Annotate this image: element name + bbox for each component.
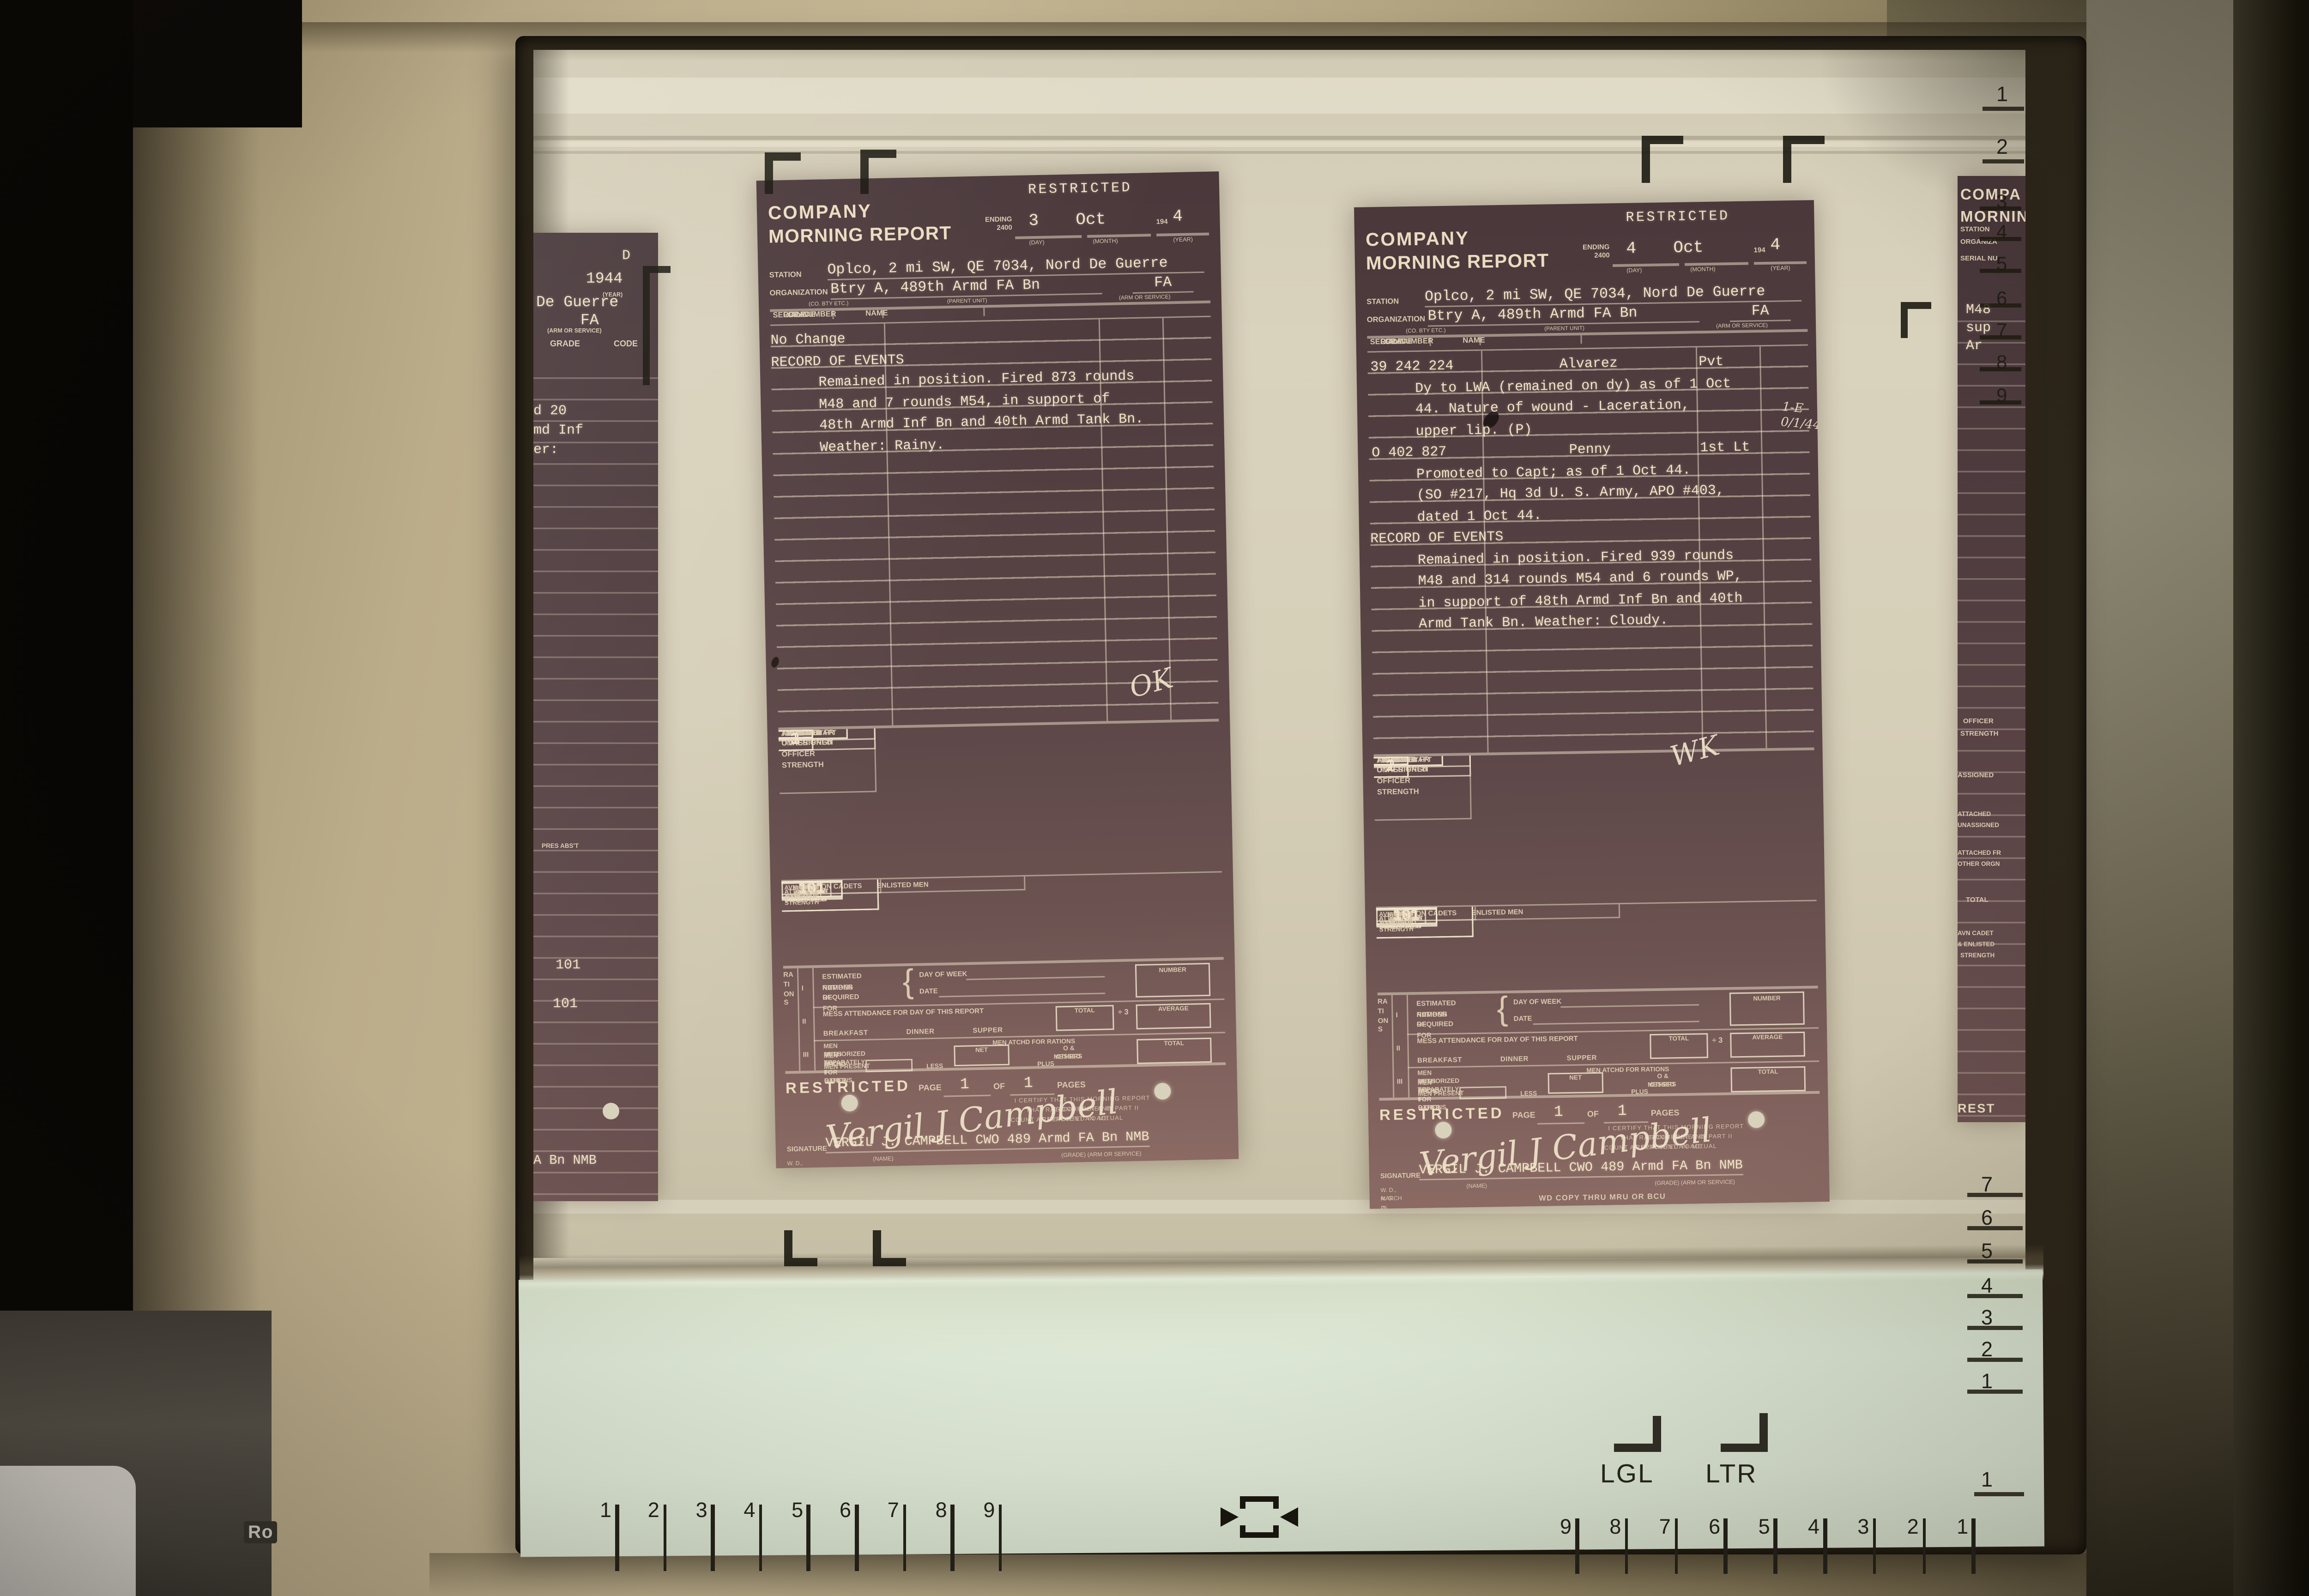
centering-arrow-right — [1280, 1507, 1298, 1527]
format-bracket-icon — [1783, 136, 1825, 183]
fragment: SERIAL NU — [1960, 255, 1998, 263]
page-number: 1 — [1554, 1105, 1563, 1121]
underline — [1087, 234, 1151, 237]
ruler-tick — [998, 1505, 1002, 1571]
record-text: No Change — [770, 332, 846, 349]
ruler-tick — [1575, 1518, 1579, 1574]
fragment: 101 — [553, 997, 578, 1013]
fragment: Ar — [1966, 339, 1983, 355]
ruler-tick — [807, 1505, 810, 1571]
parent-unit-sublabel: (PARENT UNIT) — [1544, 324, 1584, 332]
record-text: dated 1 Oct 44. — [1370, 508, 1542, 526]
ruler-tick — [1972, 1518, 1976, 1574]
ruler-number: 4 — [743, 1499, 755, 1523]
doc-footer: RESTRICTED PAGE 1 OF 1 PAGES I CERTIFY T… — [785, 1062, 1228, 1168]
format-bracket-icon — [873, 1230, 906, 1266]
centering-mark-top — [1240, 1496, 1279, 1509]
ending-month: Oct — [1076, 210, 1106, 230]
classification-restricted: RESTRICTED — [1626, 210, 1730, 227]
fragment: MORNIN — [1960, 209, 2025, 226]
fragment: UNASSIGNED — [1958, 822, 1999, 828]
format-bracket-icon — [643, 266, 671, 385]
doc-title-morning-report: MORNING REPORT — [768, 223, 952, 247]
fragment: sup — [1966, 321, 1991, 337]
number-box: NUMBER — [1729, 991, 1805, 1026]
fragment: OTHER ORGN — [1958, 860, 2000, 867]
net-box: NET — [1548, 1072, 1604, 1094]
enlisted-strength-table: AVN CADET & ENLISTED STRENGTHAVIATION CA… — [781, 871, 1224, 966]
format-bracket-icon — [765, 152, 801, 194]
morning-report-oct-3: COMPANY MORNING REPORT RESTRICTED ENDING… — [756, 171, 1239, 1168]
ruler-tick — [1625, 1518, 1628, 1574]
year-digit: 4 — [1173, 207, 1183, 226]
year-prefix: 194 — [1753, 247, 1765, 255]
station-label: STATION — [769, 271, 802, 280]
page-label: PAGE — [1512, 1112, 1535, 1121]
underline — [1537, 1122, 1584, 1124]
ending-day: 4 — [1626, 239, 1636, 258]
ruler-number: 1 — [600, 1499, 611, 1523]
fragment: TOTAL — [1966, 896, 1989, 905]
month-sublabel: (MONTH) — [1690, 266, 1716, 273]
ruler-tick — [1967, 1193, 2023, 1197]
letter-format-label: LTR — [1705, 1460, 1757, 1491]
fragment: ATTACHED FR — [1958, 849, 2001, 856]
format-bracket-icon — [1642, 136, 1683, 183]
hole-punch — [1748, 1111, 1765, 1128]
morning-report-document: COMPANY MORNING REPORT RESTRICTED ENDING… — [756, 171, 1239, 1168]
total-box-2: TOTAL — [1136, 1038, 1212, 1064]
record-text: RECORD OF EVENTS — [1370, 531, 1504, 548]
fragment: ASSIGNED — [1958, 772, 1994, 780]
ruler-tick — [615, 1505, 619, 1571]
organization-label: ORGANIZATION — [1367, 316, 1425, 325]
underline — [1015, 235, 1082, 238]
partial-document-left: D 1944 (YEAR) De Guerre FA (ARM OR SERVI… — [533, 233, 658, 1201]
ruler-tick — [1974, 1492, 2024, 1496]
rations-section: RATIONS I II III ESTIMATED NUMBER OFRATI… — [1378, 985, 1819, 1098]
underline — [1685, 262, 1748, 266]
fragment: CODE — [614, 341, 638, 349]
fragment: D — [622, 249, 630, 265]
morning-report-document: COMPANY MORNING REPORT RESTRICTED ENDING… — [1354, 200, 1830, 1209]
ruler-tick — [1873, 1518, 1876, 1574]
ending-day: 3 — [1028, 211, 1039, 230]
format-bracket-icon — [784, 1230, 817, 1266]
average-box: AVERAGE — [1136, 1003, 1211, 1029]
bezel-right-column — [2086, 0, 2233, 1596]
background-shadow — [133, 0, 302, 127]
rations-vertical-label: RATIONS — [1378, 998, 1389, 1035]
year-prefix: 194 — [1156, 218, 1167, 226]
morning-report-oct-4: COMPANY MORNING REPORT RESTRICTED ENDING… — [1354, 200, 1830, 1209]
ruler-tick — [1980, 269, 2021, 272]
format-bracket-icon — [1721, 1413, 1768, 1452]
ruler-tick — [951, 1505, 955, 1571]
ruler-number: 1 — [1981, 1469, 1993, 1492]
divide-by-three: ÷ 3 — [1712, 1037, 1723, 1046]
officer-strength-table: OFFICER STRENGTHFLD O & CAPT1ST LT2D LTW… — [1374, 747, 1817, 907]
page-total: 1 — [1024, 1076, 1034, 1093]
meals-labels: BREAKFAST DINNER SUPPER — [1417, 1054, 1597, 1065]
ruler-number: 8 — [1609, 1516, 1621, 1539]
doc-header: COMPANY MORNING REPORT RESTRICTED ENDING… — [768, 172, 1209, 264]
classification-restricted: RESTRICTED — [1028, 181, 1132, 199]
ruler-number: 6 — [840, 1499, 851, 1523]
enlisted-data-row: TOTAL101101 — [781, 881, 782, 902]
ruler-number: 9 — [983, 1499, 995, 1523]
co-sublabel: (CO. BTY ETC.) — [1406, 326, 1446, 334]
year-sublabel: (YEAR) — [1173, 236, 1193, 243]
record-text: upper lip. (P) — [1368, 423, 1532, 441]
fragment: COMPA — [1960, 187, 2021, 204]
rations-part-i: I — [802, 985, 804, 993]
net-box: NET — [954, 1045, 1009, 1066]
grade-arm-sublabel: (GRADE) (ARM OR SERVICE) — [1655, 1178, 1735, 1186]
rations-part-i: I — [1396, 1012, 1397, 1020]
ruler-tick — [711, 1505, 715, 1571]
day-sublabel: (DAY) — [1029, 239, 1045, 246]
station-label: STATION — [1366, 298, 1399, 307]
page-total: 1 — [1618, 1104, 1627, 1120]
ending-month: Oct — [1673, 238, 1703, 258]
fragment: er: — [533, 443, 558, 459]
strength-value: 1 — [779, 730, 813, 751]
centering-mark-bottom — [1240, 1525, 1279, 1538]
screen-frame: D 1944 (YEAR) De Guerre FA (ARM OR SERVI… — [515, 36, 2086, 1554]
reader-model-label: Ro — [244, 1521, 278, 1544]
background-surface — [0, 1466, 136, 1596]
fragment: AVN CADET — [1958, 930, 1994, 937]
arm-sublabel: (ARM OR SERVICE) — [1119, 293, 1171, 301]
doc-title-company: COMPANY — [768, 200, 872, 224]
ruler-number: 2 — [1996, 136, 2008, 159]
ruler-tick — [1983, 159, 2024, 163]
ruler-tick — [1967, 1226, 2023, 1230]
fragment: md Inf — [533, 424, 583, 439]
name-sublabel: (NAME) — [873, 1155, 894, 1162]
ruler-tick — [1980, 206, 2021, 210]
underline — [943, 1094, 991, 1097]
fragment: GRADE — [550, 341, 580, 349]
ruler-number: 3 — [1857, 1516, 1869, 1539]
microfilm-reader-photo: D 1944 (YEAR) De Guerre FA (ARM OR SERVI… — [0, 0, 2309, 1596]
others-messed-label: O & OTHERSMESSED — [1023, 1044, 1084, 1054]
ruler-tick — [663, 1505, 667, 1571]
serial-number: O 402 827 — [1372, 446, 1447, 462]
grade-arm-sublabel: (GRADE) (ARM OR SERVICE) — [1061, 1150, 1142, 1158]
fragment: & ENLISTED — [1958, 941, 1995, 948]
ruler-number: 7 — [1659, 1516, 1671, 1539]
soldier-name: Alvarez — [1481, 356, 1696, 374]
ruler-tick — [903, 1505, 907, 1571]
ruler-tick — [1724, 1518, 1728, 1574]
reader-screen: D 1944 (YEAR) De Guerre FA (ARM OR SERVI… — [533, 50, 2025, 1529]
fill-line — [939, 992, 1105, 997]
officer-strength-table: OFFICER STRENGTHFLD O & CAPT1ST LT2D LTW… — [778, 719, 1221, 880]
ruler-tick — [1967, 1326, 2023, 1330]
ruler-number: 6 — [1709, 1516, 1720, 1539]
ruler-tick — [1967, 1294, 2023, 1298]
total-box: TOTAL — [1056, 1005, 1114, 1031]
ruler-tick — [1983, 107, 2024, 110]
doc-title-company: COMPANY — [1366, 228, 1470, 250]
partial-document-right: COMPA MORNIN STATION ORGANIZA SERIAL NU … — [1958, 176, 2025, 1122]
arm-of-service-value: FA — [1729, 303, 1791, 322]
bezel-shading — [429, 1553, 2086, 1596]
fragment: 1944 — [586, 272, 623, 288]
signature-label: SIGNATURE — [787, 1145, 828, 1155]
wd-copy-note: WD COPY THRU MRU OR BCU — [1464, 1192, 1741, 1204]
divider — [1391, 995, 1394, 1098]
format-bracket-icon — [1614, 1416, 1661, 1452]
ruler-number: 5 — [1759, 1516, 1770, 1539]
number-box: NUMBER — [1135, 963, 1210, 997]
arm-sublabel: (ARM OR SERVICE) — [1716, 321, 1768, 329]
co-sublabel: (CO. BTY ETC.) — [809, 299, 849, 307]
ruler-number: 4 — [1808, 1516, 1819, 1539]
film-streak — [533, 78, 2025, 114]
fragment: STRENGTH — [1960, 730, 1999, 738]
total-box-2: TOTAL — [1730, 1066, 1806, 1093]
ruler-tick — [1980, 335, 2021, 339]
enlisted-data-row: TOTAL101101 — [1376, 908, 1377, 929]
others-messed-label: O & OTHERSMESSED — [1617, 1072, 1678, 1082]
ruler-tick — [855, 1505, 858, 1571]
rations-part-iii: III — [1397, 1078, 1403, 1087]
enlisted-strength-table: AVN CADET & ENLISTED STRENGTHAVIATION CA… — [1376, 900, 1818, 992]
rations-vertical-label: RATIONS — [783, 971, 795, 1009]
rations-part-ii: II — [802, 1018, 806, 1026]
doc-header: COMPANY MORNING REPORT RESTRICTED ENDING… — [1365, 200, 1807, 290]
year-sublabel: (YEAR) — [1771, 264, 1790, 272]
doc-title-morning-report: MORNING REPORT — [1366, 250, 1549, 273]
ruler-number: 3 — [696, 1499, 707, 1523]
ruler-tick — [1823, 1518, 1827, 1574]
ruler-tick — [1674, 1518, 1678, 1574]
total-box: TOTAL — [1650, 1033, 1708, 1059]
ruler-number: 7 — [888, 1499, 899, 1523]
underline — [1754, 261, 1807, 264]
fill-line — [1533, 1021, 1699, 1025]
day-sublabel: (DAY) — [1626, 266, 1642, 274]
strength-value: 101 — [1376, 907, 1438, 926]
ruler-tick — [759, 1505, 762, 1571]
hole-punch — [841, 1094, 858, 1112]
rations-part-ii: II — [1396, 1045, 1401, 1053]
ruler-number: 8 — [936, 1499, 947, 1523]
fill-line — [1560, 1004, 1699, 1008]
brace-glyph: { — [1497, 991, 1508, 1029]
ruler-number: 2 — [648, 1499, 659, 1523]
day-of-week-label: DAY OF WEEK — [919, 970, 967, 979]
brace-glyph: { — [902, 963, 914, 1002]
col-code: CODE — [1367, 338, 1416, 347]
format-bracket-icon — [1901, 302, 1931, 338]
grade-value: Pvt — [1699, 354, 1782, 371]
ruler-tick — [1967, 1358, 2023, 1361]
ending-label: ENDING 2400 — [956, 216, 1012, 233]
divide-by-three: ÷ 3 — [1118, 1009, 1129, 1017]
ruler-tick — [1967, 1259, 2023, 1263]
men-present-label: MEN PRESENT — [1418, 1089, 1464, 1097]
ruler-number: 2 — [1907, 1516, 1919, 1539]
date-label: DATE — [919, 988, 938, 997]
fill-line — [966, 976, 1105, 980]
ruler-number: 1 — [1996, 83, 2008, 107]
col-code: CODE — [770, 311, 818, 320]
average-box: AVERAGE — [1730, 1032, 1805, 1058]
doc-footer: RESTRICTED PAGE 1 OF 1 PAGES I CERTIFY T… — [1379, 1091, 1821, 1209]
hole-punch — [1435, 1122, 1452, 1139]
signature-label: SIGNATURE — [1380, 1172, 1421, 1181]
serial-number: 39 242 224 — [1370, 360, 1454, 376]
ruler-tick — [1774, 1518, 1777, 1574]
month-sublabel: (MONTH) — [1093, 237, 1118, 245]
name-sublabel: (NAME) — [1466, 1182, 1487, 1190]
fragment: STRENGTH — [1960, 952, 1995, 959]
year-digit: 4 — [1770, 235, 1780, 254]
ruler-number: 1 — [1957, 1516, 1968, 1539]
fragment: A Bn NMB — [533, 1153, 597, 1168]
arm-of-service-value: FA — [1132, 274, 1194, 294]
of-label: OF — [1587, 1111, 1599, 1119]
ruler-tick — [1922, 1518, 1926, 1574]
fragment: STATION — [1960, 226, 1990, 234]
parent-unit-sublabel: (PARENT UNIT) — [947, 296, 987, 304]
page-number: 1 — [960, 1077, 970, 1094]
divider — [812, 968, 816, 1070]
strength-value: 1 — [1374, 756, 1408, 778]
fragment: OFFICER — [1963, 718, 1994, 726]
format-bracket-icon — [860, 150, 896, 194]
strength-value: 101 — [781, 880, 843, 900]
fragment: ATTACHED — [1958, 810, 1991, 817]
ruler-tick — [1980, 367, 2021, 371]
soldier-name: Penny — [1482, 441, 1697, 460]
divider — [1407, 995, 1409, 1097]
hole-punch — [1154, 1083, 1171, 1100]
divider — [797, 968, 800, 1071]
legal-format-label: LGL — [1600, 1460, 1654, 1491]
organization-label: ORGANIZATION — [769, 289, 828, 298]
day-of-week-label: DAY OF WEEK — [1513, 998, 1561, 1007]
background-shadow — [2233, 0, 2309, 1596]
rations-part-iii: III — [803, 1051, 809, 1059]
grade-value: 1st Lt — [1700, 440, 1783, 457]
ruler-tick — [1967, 1390, 2023, 1393]
ruler-number: 9 — [1560, 1516, 1572, 1539]
record-text: Weather: Rainy. — [773, 438, 945, 457]
fragment: 101 — [556, 959, 580, 974]
fragment: De Guerre — [536, 295, 618, 312]
fragment: REST — [1958, 1101, 1995, 1115]
hole-punch — [603, 1103, 619, 1119]
ruler-tick — [1980, 400, 2021, 404]
underline — [1156, 233, 1209, 236]
record-text: RECORD OF EVENTS — [771, 353, 904, 371]
ruler-tick — [1980, 237, 2021, 241]
centering-arrow-left — [1221, 1507, 1239, 1527]
of-label: OF — [993, 1083, 1005, 1092]
ending-label: ENDING 2400 — [1554, 243, 1610, 261]
centering-mark-icon — [1221, 1496, 1298, 1538]
rations-section: RATIONS I II III ESTIMATED NUMBER OFRATI… — [783, 957, 1226, 1071]
fragment: d 20 — [533, 405, 567, 420]
ruler-tick — [1980, 303, 2021, 307]
date-label: DATE — [1514, 1015, 1532, 1024]
underline — [1613, 263, 1679, 266]
roster-area: 39 242 224AlvarezPvtDy to LWA (remained … — [1367, 346, 1814, 755]
fragment: (ARM OR SERVICE) — [547, 327, 602, 334]
ruler-number: 5 — [792, 1499, 803, 1523]
fragment: PRES ABS'T — [542, 842, 579, 849]
page-label: PAGE — [919, 1085, 942, 1094]
